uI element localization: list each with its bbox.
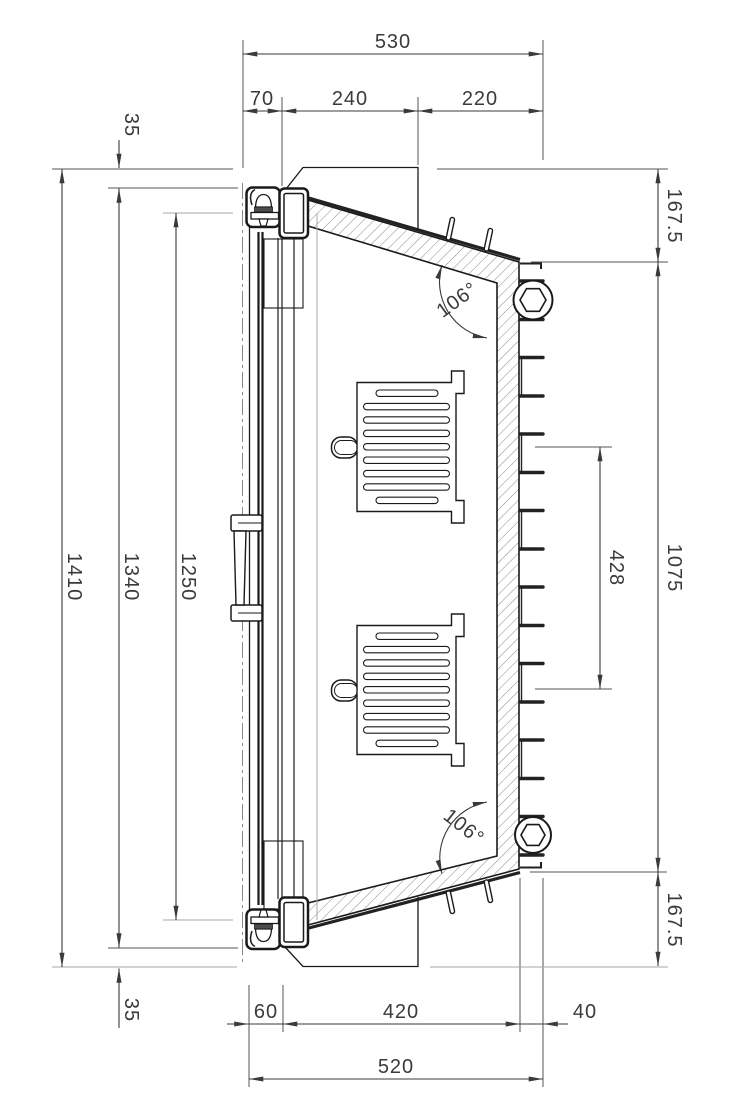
dim-height-opening: 1250 xyxy=(177,553,199,602)
weld-pin xyxy=(484,228,493,251)
dim-clip-span: 428 xyxy=(605,550,627,586)
dim-angle-top: 106° xyxy=(433,278,483,322)
dim-height-frame: 1340 xyxy=(120,553,142,602)
door-handle xyxy=(231,515,262,621)
dim-right-bottom: 167.5 xyxy=(663,892,685,947)
insulated-wall-section xyxy=(308,200,519,925)
dim-bottom-seg1: 60 xyxy=(254,1001,278,1023)
wall-clip-rail xyxy=(520,264,543,868)
weld-pin xyxy=(446,891,455,914)
dim-top-seg3: 220 xyxy=(462,88,498,110)
hinge-block-top xyxy=(280,189,309,239)
dim-offset-bottom: 35 xyxy=(120,998,142,1022)
dim-right-top: 167.5 xyxy=(663,188,685,243)
weld-pin xyxy=(484,880,493,903)
dim-top-total: 530 xyxy=(375,31,411,53)
dim-top-seg1: 70 xyxy=(250,88,274,110)
hex-bolt-bottom xyxy=(515,817,551,853)
vent-grille-top xyxy=(332,371,465,523)
weld-pin xyxy=(446,217,455,240)
dim-top-seg2: 240 xyxy=(332,88,368,110)
hinge-block-bottom xyxy=(280,898,309,948)
dimension-lines xyxy=(62,54,658,1079)
dim-right-wall: 1075 xyxy=(663,544,685,593)
door-assembly xyxy=(231,183,317,963)
technical-drawing-canvas: 530 70 240 220 35 1410 1340 1250 35 167.… xyxy=(0,0,749,1104)
dim-bottom-seg2: 420 xyxy=(383,1001,419,1023)
dim-bottom-total: 520 xyxy=(378,1056,414,1078)
dim-height-outer: 1410 xyxy=(63,553,85,602)
dim-bottom-seg3: 40 xyxy=(573,1001,597,1023)
reference-lines xyxy=(52,40,668,1087)
enclosure-geometry xyxy=(285,168,553,967)
hex-bolt-top xyxy=(514,281,553,320)
door-panel-lines xyxy=(250,227,295,911)
pane-seal-top xyxy=(264,239,303,308)
dim-offset-top: 35 xyxy=(120,113,142,137)
vent-grille-bottom xyxy=(332,614,465,766)
